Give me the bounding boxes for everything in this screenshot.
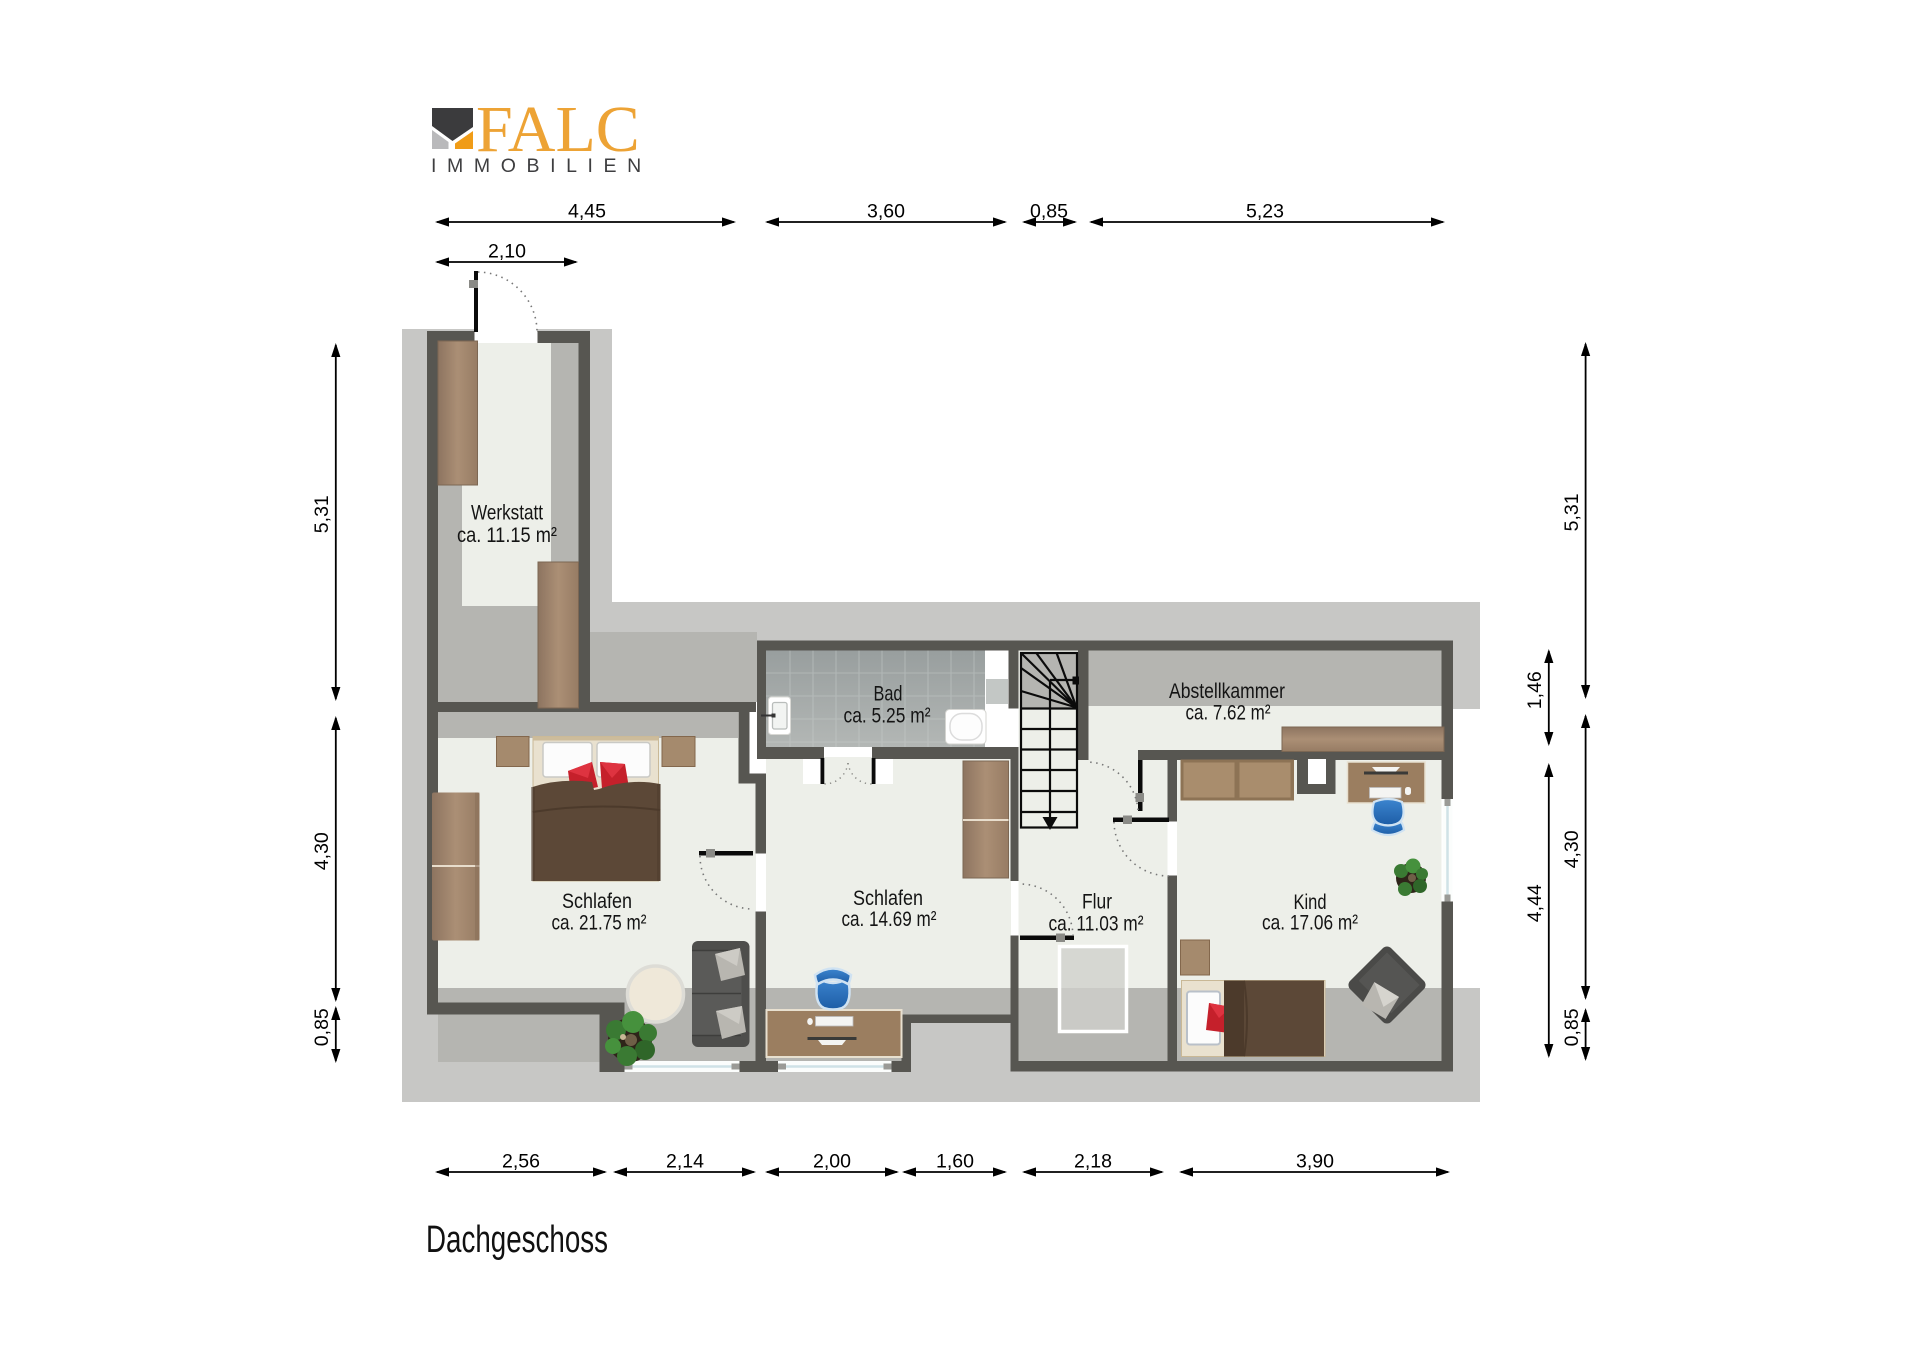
svg-text:0,85: 0,85 [1562, 1008, 1583, 1046]
svg-text:1,46: 1,46 [1525, 671, 1546, 709]
svg-text:5,31: 5,31 [312, 495, 333, 533]
svg-text:ca. 14.69 m²: ca. 14.69 m² [842, 908, 937, 931]
svg-text:ca. 11.15 m²: ca. 11.15 m² [457, 524, 557, 547]
svg-text:ca. 11.03 m²: ca. 11.03 m² [1049, 913, 1144, 936]
svg-text:3,60: 3,60 [867, 202, 905, 223]
svg-text:2,00: 2,00 [813, 1152, 851, 1173]
svg-text:5,31: 5,31 [1562, 493, 1583, 531]
svg-text:Flur: Flur [1082, 891, 1112, 914]
svg-text:Dachgeschoss: Dachgeschoss [426, 1219, 608, 1261]
svg-text:2,18: 2,18 [1074, 1152, 1112, 1173]
svg-text:ca. 17.06 m²: ca. 17.06 m² [1262, 912, 1358, 935]
svg-text:5,23: 5,23 [1246, 202, 1284, 223]
svg-text:2,10: 2,10 [488, 242, 526, 263]
svg-text:IMMOBILIEN: IMMOBILIEN [431, 155, 652, 177]
svg-text:Abstellkammer: Abstellkammer [1169, 680, 1285, 703]
svg-text:2,56: 2,56 [502, 1152, 540, 1173]
svg-text:ca. 21.75 m²: ca. 21.75 m² [552, 912, 647, 935]
svg-text:ca. 7.62 m²: ca. 7.62 m² [1186, 702, 1271, 725]
svg-text:2,14: 2,14 [666, 1152, 704, 1173]
svg-text:1,60: 1,60 [936, 1152, 974, 1173]
svg-text:Bad: Bad [874, 683, 903, 706]
svg-text:ca. 5.25 m²: ca. 5.25 m² [844, 705, 931, 728]
svg-text:4,30: 4,30 [1562, 830, 1583, 868]
svg-text:4,45: 4,45 [568, 202, 606, 223]
svg-text:3,90: 3,90 [1296, 1152, 1334, 1173]
svg-text:Schlafen: Schlafen [853, 887, 923, 910]
svg-text:0,85: 0,85 [312, 1008, 333, 1046]
svg-text:0,85: 0,85 [1030, 202, 1068, 223]
svg-text:4,44: 4,44 [1525, 884, 1546, 922]
svg-text:Werkstatt: Werkstatt [471, 502, 543, 525]
svg-text:Schlafen: Schlafen [562, 890, 632, 913]
svg-text:4,30: 4,30 [312, 832, 333, 870]
